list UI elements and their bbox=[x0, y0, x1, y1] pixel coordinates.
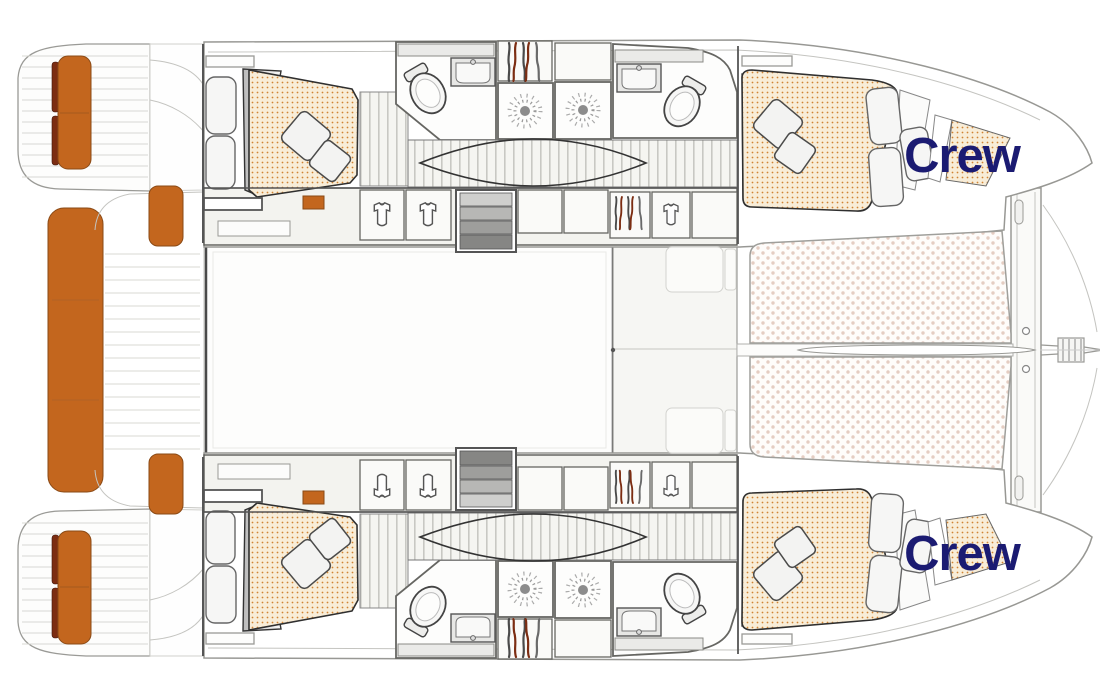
wardrobe-locker bbox=[652, 192, 690, 238]
headboard-shelf bbox=[206, 56, 254, 67]
forward-bathroom bbox=[613, 44, 737, 138]
saloon bbox=[206, 245, 613, 455]
foredeck-seat-arm bbox=[725, 249, 736, 290]
trampoline-spine bbox=[737, 344, 1035, 356]
seat-bench bbox=[218, 221, 290, 236]
shower-stall bbox=[498, 83, 553, 139]
shower-stall bbox=[555, 82, 611, 139]
vanity-counter bbox=[615, 50, 703, 62]
cockpit-deck-planks bbox=[105, 254, 200, 449]
step-box bbox=[303, 196, 324, 209]
crew-label-top: Crew bbox=[904, 129, 1022, 183]
crew-label-bottom: Crew bbox=[904, 527, 1022, 581]
catamaran-floor-plan: Crew Crew bbox=[0, 0, 1100, 700]
cockpit-side-bench bbox=[149, 186, 183, 246]
vanity-counter bbox=[398, 44, 494, 56]
foredeck-seat bbox=[666, 247, 723, 292]
headboard-shelf bbox=[742, 56, 792, 66]
wardrobe-locker bbox=[406, 190, 451, 240]
berth-pillow bbox=[206, 77, 236, 134]
storage-slot bbox=[204, 198, 262, 210]
sink-icon bbox=[617, 64, 661, 92]
bowsprit bbox=[1040, 205, 1100, 495]
companionway-steps bbox=[456, 190, 516, 252]
hanging-locker bbox=[610, 192, 650, 238]
transom-seat bbox=[58, 56, 91, 169]
floor-plan-drawing: Crew Crew bbox=[0, 0, 1100, 700]
berth-pillow bbox=[868, 147, 904, 207]
cabinet bbox=[564, 190, 608, 233]
sink-icon bbox=[451, 58, 495, 86]
beam-fitting bbox=[1015, 200, 1023, 224]
hanging-locker bbox=[498, 41, 552, 81]
wardrobe-locker bbox=[360, 190, 404, 240]
cabinet bbox=[518, 190, 562, 233]
berth-pillow bbox=[206, 136, 235, 189]
berth-pillow bbox=[865, 86, 903, 145]
cabinet bbox=[692, 192, 737, 238]
cabinet bbox=[555, 43, 611, 80]
cockpit-bench-aft bbox=[48, 208, 103, 492]
trampoline-net bbox=[750, 231, 1011, 343]
beam-bolt bbox=[1023, 328, 1030, 335]
